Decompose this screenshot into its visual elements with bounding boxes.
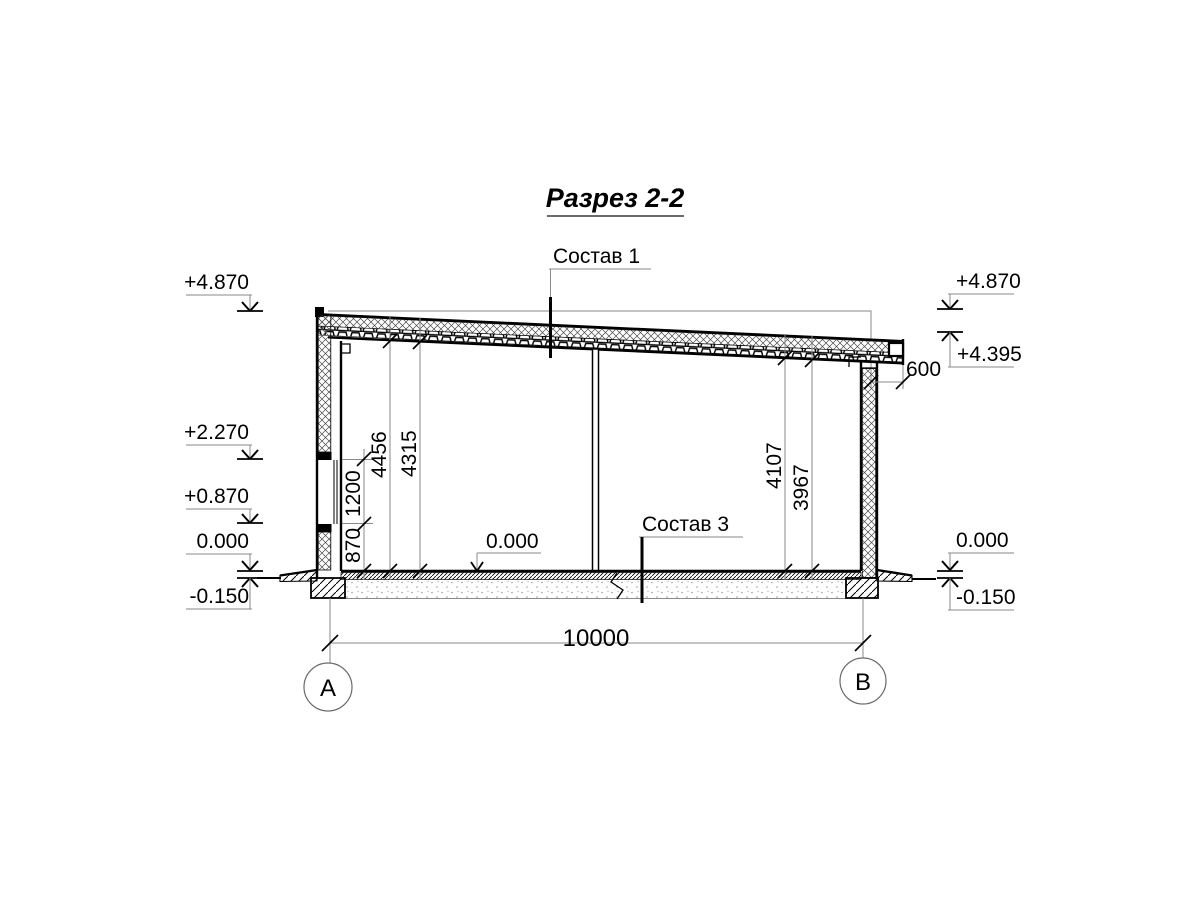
span-dimension: 10000 А В bbox=[304, 598, 886, 711]
floor-slab bbox=[341, 571, 861, 599]
elevation-marks-left: +4.870 +2.270 +0.870 0.000 -0.150 bbox=[184, 271, 263, 609]
floor-underlayment bbox=[345, 580, 847, 598]
dim-height-right-outer: 4107 bbox=[763, 442, 786, 489]
grid-axis-a: А bbox=[320, 675, 336, 702]
elevation-mark: +0.870 bbox=[184, 485, 263, 523]
elevation-value: 0.000 bbox=[956, 529, 1009, 552]
foundation-right bbox=[846, 578, 878, 598]
elevation-value: -0.150 bbox=[189, 585, 249, 608]
elevation-mark: +4.395 bbox=[937, 332, 1022, 367]
section-drawing: 870 1200 4456 4315 4107 3967 600 10000 А… bbox=[0, 0, 1200, 900]
elevation-mark: +2.270 bbox=[184, 421, 263, 459]
elevation-mark: 0.000 bbox=[937, 529, 1014, 571]
dim-window: 1200 bbox=[342, 470, 365, 517]
floor-level-value: 0.000 bbox=[486, 530, 539, 553]
elevation-mark: +4.870 bbox=[184, 271, 263, 311]
elevation-mark: -0.150 bbox=[937, 578, 1016, 610]
elevation-value: +4.395 bbox=[957, 343, 1022, 366]
elevation-value: -0.150 bbox=[956, 586, 1016, 609]
dim-span: 10000 bbox=[563, 625, 630, 652]
window-sill-cap bbox=[318, 524, 332, 532]
elevation-value: +2.270 bbox=[184, 421, 249, 444]
elevation-value: 0.000 bbox=[196, 530, 249, 553]
roof-composition-label: Состав 1 bbox=[553, 245, 640, 268]
right-wall bbox=[849, 357, 877, 578]
roof-fascia bbox=[889, 343, 903, 356]
elevation-mark: +4.870 bbox=[937, 270, 1021, 309]
dim-overhang: 600 bbox=[906, 358, 941, 381]
title-text: Разрез 2-2 bbox=[546, 183, 685, 213]
left-bearing-step bbox=[341, 344, 350, 353]
dim-height-left-inner: 4315 bbox=[398, 430, 421, 477]
elevation-marks-right: +4.870 +4.395 0.000 -0.150 bbox=[937, 270, 1022, 610]
drawing-sheet: 870 1200 4456 4315 4107 3967 600 10000 А… bbox=[0, 0, 1200, 900]
floor-level-callout: 0.000 bbox=[471, 530, 541, 571]
drawing-title: Разрез 2-2 bbox=[546, 183, 685, 216]
dim-sill: 870 bbox=[342, 528, 365, 563]
elevation-value: +4.870 bbox=[184, 271, 249, 294]
elevation-mark: 0.000 bbox=[186, 530, 263, 571]
dim-height-right-inner: 3967 bbox=[790, 464, 813, 511]
elevation-mark: -0.150 bbox=[186, 578, 263, 609]
center-column bbox=[593, 349, 599, 571]
elevation-value: +0.870 bbox=[184, 485, 249, 508]
window-head-cap bbox=[318, 452, 332, 460]
dimension-ticks bbox=[357, 334, 819, 578]
grid-axis-b: В bbox=[855, 669, 871, 696]
dim-height-left-outer: 4456 bbox=[368, 431, 391, 478]
elevation-value: +4.870 bbox=[956, 270, 1021, 293]
floor-composition-label: Состав 3 bbox=[642, 513, 729, 536]
